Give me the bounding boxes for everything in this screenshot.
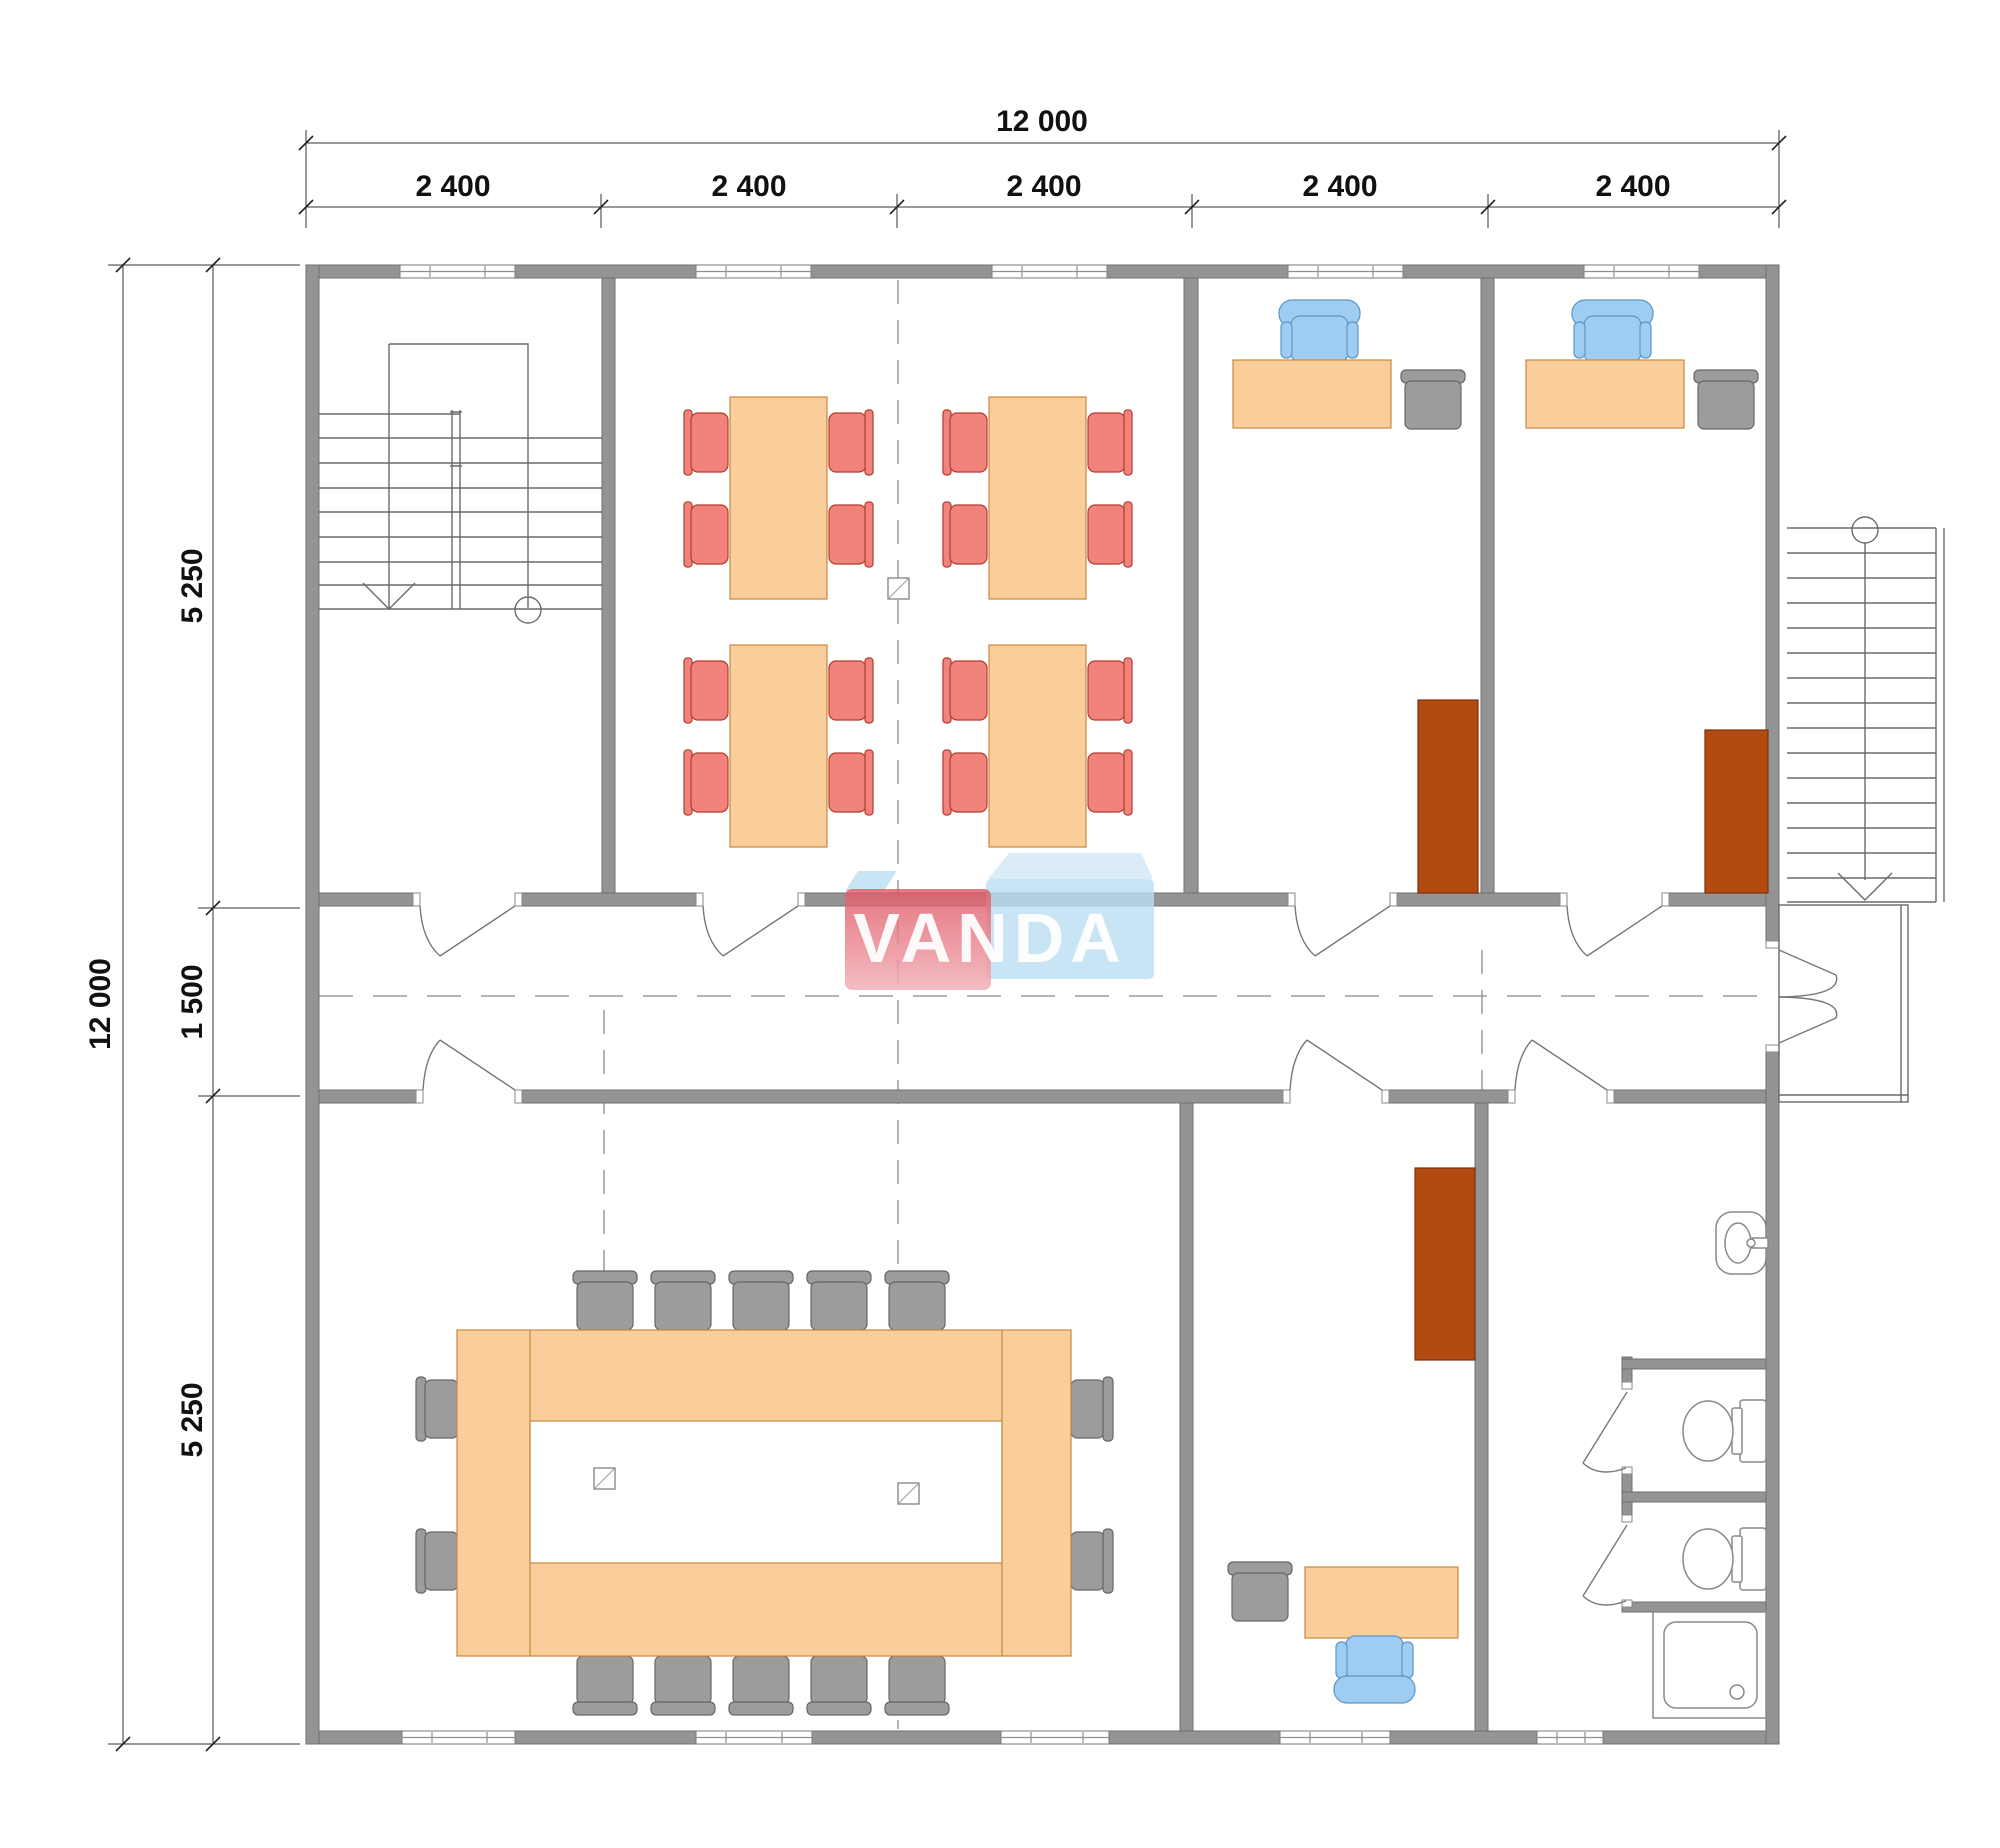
canteen-table-set-icon	[943, 645, 1132, 847]
column-icon	[898, 1483, 919, 1504]
conference-chair-icon	[651, 1271, 715, 1330]
door-icon-office1	[1295, 906, 1390, 956]
conference-chair-icon	[807, 1656, 871, 1715]
conference-chair-icon	[651, 1656, 715, 1715]
wall-partition-office-bathroom	[1475, 1103, 1488, 1731]
dim-top-bay-label: 2 400	[415, 170, 490, 203]
wall-corridor-top	[319, 893, 420, 906]
door-icon-canteen	[703, 906, 798, 956]
conference-chair-icon	[885, 1271, 949, 1330]
office1-furniture	[1233, 300, 1478, 893]
office-chair-icon	[1334, 1636, 1415, 1703]
canteen-table-set-icon	[943, 397, 1132, 599]
door-icon-office2	[1567, 906, 1662, 956]
canteen-table-set-icon	[684, 645, 873, 847]
door-icon-bathroom	[1515, 1040, 1607, 1090]
external-staircase-icon	[1787, 517, 1944, 902]
logo-shape-parallelogram	[845, 871, 897, 891]
door-icon-office-bottom	[1290, 1040, 1382, 1090]
dim-top-bay-label: 2 400	[1595, 170, 1670, 203]
dim-left-row-label: 1 500	[176, 964, 209, 1039]
conference-chair-icon	[416, 1377, 458, 1441]
wall-corridor-top	[1662, 893, 1766, 906]
internal-staircase-icon	[319, 344, 602, 623]
wall-corridor-bottom	[515, 1090, 1290, 1103]
conference-chair-icon	[729, 1271, 793, 1330]
wall-corridor-bottom	[1607, 1090, 1766, 1103]
office-bottom-furniture	[1228, 1168, 1475, 1703]
conference-chair-icon	[807, 1271, 871, 1330]
wall-partition-stair-canteen	[602, 278, 615, 893]
door-icon-toilet-stall-2	[1583, 1525, 1627, 1605]
column-icon	[888, 578, 909, 599]
column-icon	[594, 1468, 615, 1489]
wall-stall-top	[1622, 1359, 1766, 1369]
wall-corridor-top	[515, 893, 703, 906]
wall-corridor-bottom	[319, 1090, 423, 1103]
cabinet-icon	[1705, 730, 1768, 893]
conference-chair-icon	[573, 1271, 637, 1330]
conference-chair-icon	[573, 1656, 637, 1715]
office-desk-set-icon	[1233, 300, 1465, 429]
office2-furniture	[1526, 300, 1768, 893]
desk-icon	[1305, 1567, 1458, 1638]
dim-left-row-label: 5 250	[176, 1382, 209, 1457]
wall-corridor-bottom	[1382, 1090, 1515, 1103]
wall-partition-canteen-office1	[1184, 278, 1198, 893]
shower-icon	[1653, 1612, 1766, 1718]
dim-top-bay-label: 2 400	[1302, 170, 1377, 203]
conference-chair-icon	[885, 1656, 949, 1715]
dimension-left: 12 000 5 250 1 500 5 250	[84, 258, 300, 1751]
wall-partition-office1-office2	[1481, 278, 1494, 893]
dim-top-bay-label: 2 400	[711, 170, 786, 203]
sink-icon	[1716, 1212, 1768, 1274]
dimension-top: 12 000 2 400 2 400 2 400 2 400 2 400	[299, 105, 1786, 228]
wall-stall-bottom	[1622, 1602, 1766, 1612]
dim-top-bay-label: 2 400	[1006, 170, 1081, 203]
entrance-platform	[1779, 905, 1908, 1102]
conference-chair-icon	[416, 1529, 458, 1593]
bathroom-fixtures	[1653, 1212, 1768, 1718]
office-desk-set-icon	[1526, 300, 1758, 429]
wall-stall-divider	[1622, 1492, 1766, 1502]
wall-exterior-left	[306, 265, 319, 1744]
dim-top-total-label: 12 000	[996, 105, 1088, 138]
floor-plan-drawing: 12 000 2 400 2 400 2 400 2 400 2 400 12 …	[0, 0, 2000, 1848]
conference-chair-icon	[1071, 1529, 1113, 1593]
wall-corridor-top	[1390, 893, 1567, 906]
wall-exterior-right-lower	[1766, 1045, 1779, 1744]
canteen-table-set-icon	[684, 397, 873, 599]
guest-chair-icon	[1228, 1562, 1292, 1621]
door-icon-toilet-stall-1	[1583, 1392, 1627, 1472]
floor-plan-page: 12 000 2 400 2 400 2 400 2 400 2 400 12 …	[0, 0, 2000, 1848]
door-icon-entrance-double	[1779, 950, 1837, 1043]
wall-partition-meeting-office	[1180, 1103, 1193, 1731]
meeting-table-hollow	[530, 1421, 1002, 1563]
conference-chair-icon	[1071, 1377, 1113, 1441]
canteen-furniture	[684, 397, 1132, 847]
cabinet-icon	[1415, 1168, 1475, 1360]
meeting-room-furniture	[416, 1271, 1113, 1715]
logo-text: VANDA	[853, 899, 1127, 977]
cabinet-icon	[1418, 700, 1478, 893]
dim-left-total-label: 12 000	[84, 958, 117, 1050]
door-icon-meeting-room	[423, 1040, 515, 1090]
dim-left-row-label: 5 250	[176, 548, 209, 623]
conference-chair-icon	[729, 1656, 793, 1715]
door-icon-stairwell	[420, 906, 515, 956]
toilet-icon	[1683, 1528, 1766, 1590]
vanda-logo: VANDA	[845, 853, 1154, 990]
toilet-icon	[1683, 1400, 1766, 1462]
logo-shape-top-face	[988, 853, 1153, 879]
stair-start-circle-icon	[1852, 517, 1878, 543]
